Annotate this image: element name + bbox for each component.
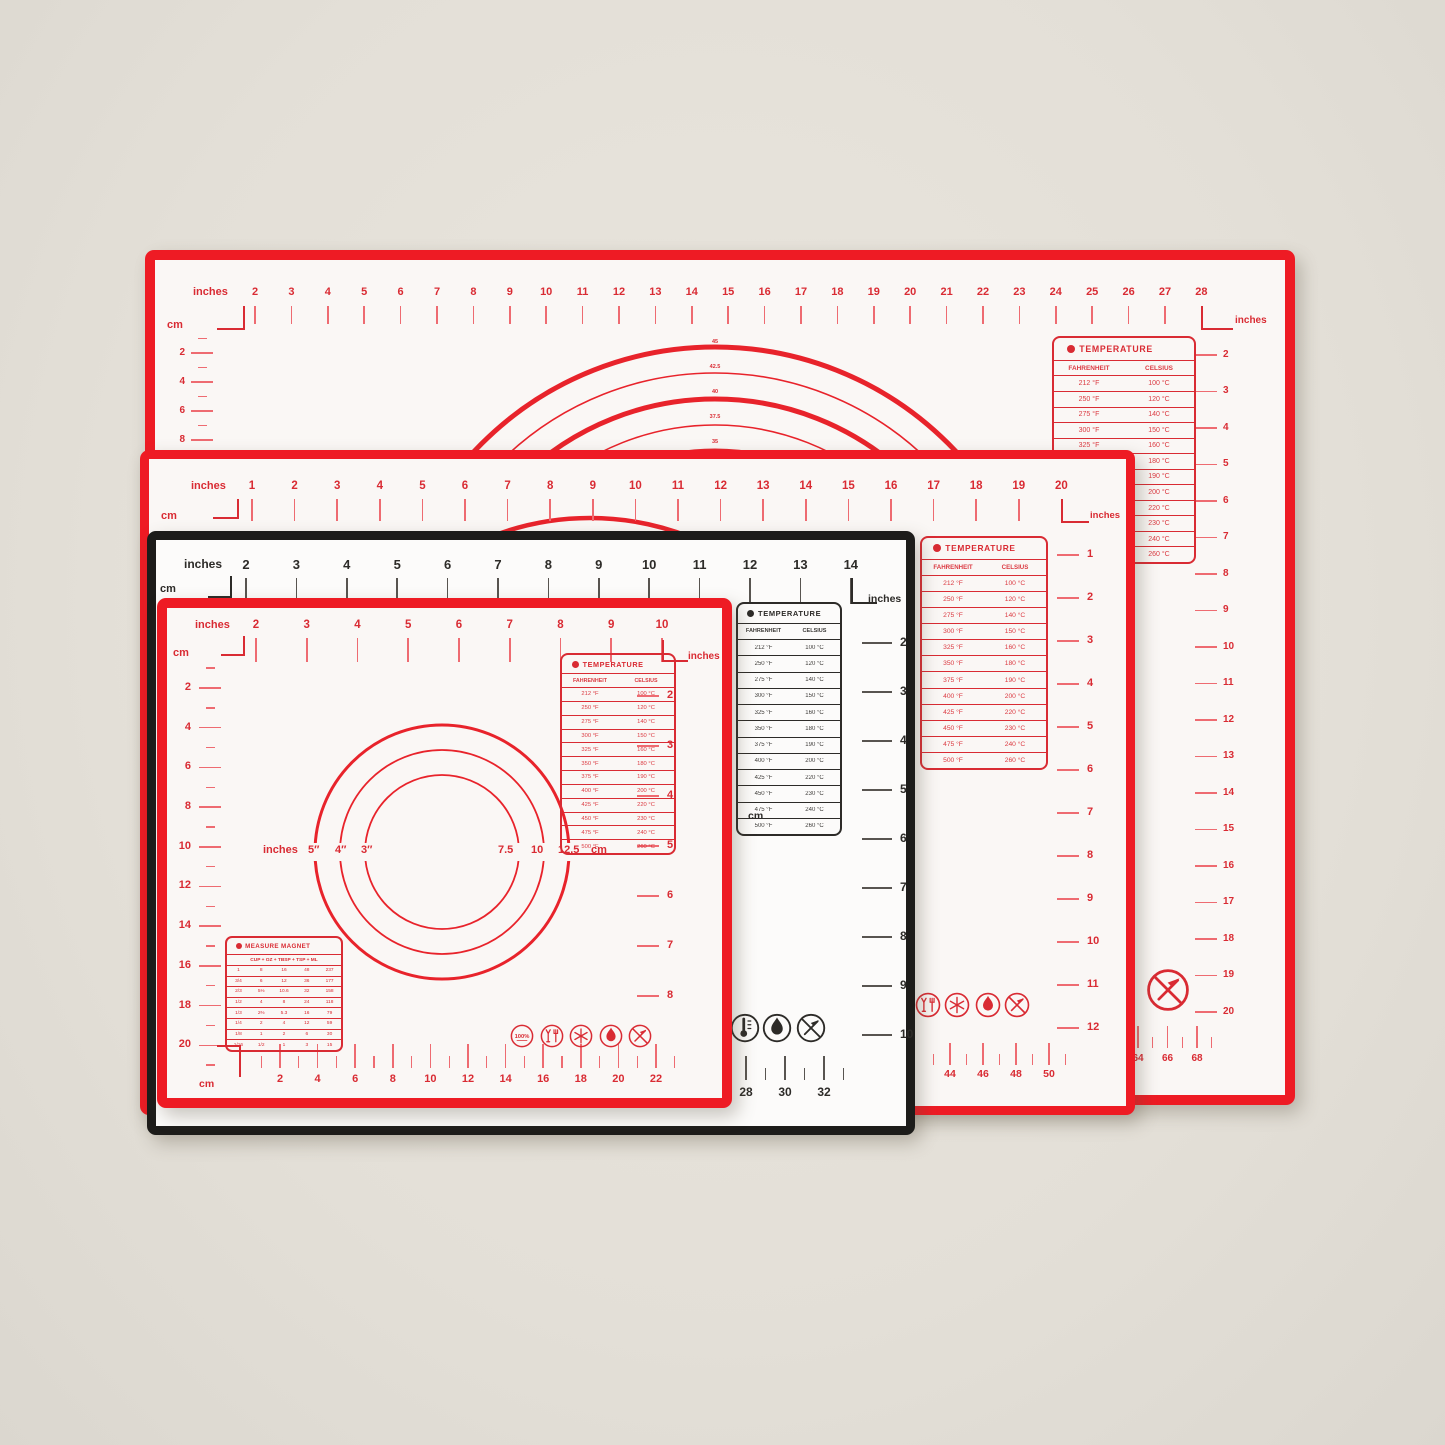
- ruler-tick: [805, 499, 807, 521]
- ruler-dash: [1195, 537, 1217, 539]
- ruler-number: 2: [1087, 592, 1117, 603]
- ruler-minor-dash: [206, 826, 216, 827]
- ruler-number: 7: [1087, 807, 1117, 818]
- ruler-number: 16: [875, 481, 907, 493]
- ruler-tick: [1167, 1026, 1169, 1048]
- measure-magnet-heading: MEASURE MAGNET: [245, 943, 310, 950]
- ruler-tick: [363, 306, 365, 324]
- temperature-column-header: FAHRENHEIT: [922, 560, 984, 575]
- ruler-minor-dash: [206, 945, 216, 946]
- temperature-table: TEMPERATUREFAHRENHEITCELSIUS212 °F100 °C…: [920, 536, 1048, 770]
- ruler-number: 22: [640, 1074, 672, 1085]
- ruler-corner: [217, 306, 245, 330]
- fahrenheit-value: 425 °F: [922, 705, 984, 720]
- temperature-table-body: FAHRENHEITCELSIUS212 °F100 °C250 °F120 °…: [562, 673, 674, 853]
- temperature-table: TEMPERATUREFAHRENHEITCELSIUS212 °F100 °C…: [560, 653, 676, 855]
- food-safe-icon: [540, 1024, 564, 1048]
- ruler-number: 4: [342, 620, 374, 632]
- celsius-value: 100 °C: [1124, 376, 1194, 391]
- measure-value: 6: [295, 1030, 318, 1040]
- temperature-row: 325 °F160 °C: [922, 639, 1046, 655]
- food-safe-icon: [915, 992, 941, 1018]
- ring-size-label: 45: [700, 340, 730, 346]
- temperature-row: 425 °F220 °C: [738, 769, 840, 785]
- bullet-dot-icon: [572, 661, 579, 668]
- temperature-row: 300 °F150 °C: [922, 623, 1046, 639]
- ruler-tick: [1048, 1043, 1050, 1065]
- ruler-number: 20: [894, 287, 926, 298]
- ruler-tick: [509, 638, 511, 662]
- celsius-value: 220 °C: [984, 705, 1046, 720]
- fahrenheit-value: 325 °F: [922, 640, 984, 655]
- measure-value: 24: [295, 998, 318, 1008]
- ruler-dash: [1195, 938, 1217, 940]
- ruler-dash: [1195, 719, 1217, 721]
- ruler-minor-tick: [599, 1056, 600, 1068]
- measure-value: 5.3: [273, 1008, 296, 1018]
- ruler-dash: [191, 381, 213, 383]
- temperature-header-row: FAHRENHEITCELSIUS: [1054, 360, 1194, 376]
- ruler-number: 4: [900, 734, 930, 746]
- celsius-value: 100 °C: [984, 576, 1046, 591]
- temperature-row: 375 °F190 °C: [738, 737, 840, 753]
- ruler-number: 15: [1223, 824, 1253, 834]
- ruler-tick: [306, 638, 308, 662]
- ruler-dash: [1195, 865, 1217, 867]
- measure-value: 158: [318, 987, 341, 997]
- temperature-column-header: CELSIUS: [789, 624, 840, 639]
- celsius-value: 190 °C: [984, 672, 1046, 687]
- ruler-number: 16: [749, 287, 781, 298]
- ruler-number: 3: [1087, 635, 1117, 646]
- ruler-number: 22: [967, 287, 999, 298]
- celsius-value: 120 °C: [789, 656, 840, 671]
- ruler-corner: [208, 576, 232, 598]
- temperature-table-title: TEMPERATURE: [562, 655, 674, 673]
- ruler-tick: [354, 1044, 356, 1068]
- celsius-value: 220 °C: [618, 799, 674, 812]
- ruler-number: 6: [385, 287, 417, 298]
- fahrenheit-value: 300 °F: [562, 730, 618, 743]
- temperature-column-header: FAHRENHEIT: [738, 624, 789, 639]
- celsius-value: 160 °C: [984, 640, 1046, 655]
- measure-value: 32: [295, 987, 318, 997]
- ruler-minor-dash: [206, 1064, 216, 1065]
- circle-diameter-label: 4″: [335, 845, 346, 856]
- fahrenheit-value: 275 °F: [562, 716, 618, 729]
- inches-unit-label: inches: [1235, 316, 1267, 326]
- temperature-row: 350 °F180 °C: [562, 756, 674, 770]
- fahrenheit-value: 212 °F: [738, 640, 789, 655]
- ruler-number: 7: [667, 940, 697, 951]
- cm-unit-label: cm: [167, 320, 183, 331]
- ruler-dash: [199, 806, 221, 808]
- ruler-number: 5: [900, 783, 930, 795]
- celsius-value: 240 °C: [984, 737, 1046, 752]
- celsius-value: 230 °C: [618, 813, 674, 826]
- ruler-tick: [291, 306, 293, 324]
- temperature-row: 250 °F120 °C: [1054, 391, 1194, 407]
- ruler-dash: [1195, 683, 1217, 685]
- temperature-row: 350 °F180 °C: [922, 655, 1046, 671]
- ruler-tick: [800, 578, 802, 604]
- fahrenheit-value: 350 °F: [922, 656, 984, 671]
- measure-magnet-row: 3/461236177: [227, 976, 341, 987]
- measure-value: 5⅓: [250, 987, 273, 997]
- measure-value: 10.6: [273, 987, 296, 997]
- ruler-tick: [458, 638, 460, 662]
- ruler-tick: [400, 306, 402, 324]
- fahrenheit-value: 400 °F: [738, 754, 789, 769]
- ruler-minor-tick: [637, 1056, 638, 1068]
- temperature-column-header: FAHRENHEIT: [562, 674, 618, 687]
- ruler-number: 24: [1040, 287, 1072, 298]
- ruler-tick: [655, 306, 657, 324]
- ruler-tick: [392, 1044, 394, 1068]
- ruler-dash: [199, 965, 221, 967]
- measure-value: 2/3: [227, 987, 250, 997]
- inches-unit-label: inches: [868, 594, 901, 605]
- ruler-tick: [379, 499, 381, 521]
- ruler-number: 3: [321, 481, 353, 493]
- ruler-number: 10: [900, 1028, 930, 1040]
- ruler-tick: [1018, 499, 1020, 521]
- ruler-number: 2: [900, 636, 930, 648]
- ruler-minor-dash: [198, 425, 208, 426]
- ruler-number: 6: [1087, 764, 1117, 775]
- ruler-number: 19: [1223, 970, 1253, 980]
- celsius-value: 150 °C: [984, 624, 1046, 639]
- ruler-tick: [1137, 1026, 1139, 1048]
- ruler-tick: [949, 1043, 951, 1065]
- ruler-number: 12: [603, 287, 635, 298]
- ruler-number: 6: [443, 620, 475, 632]
- ruler-minor-tick: [449, 1056, 450, 1068]
- ruler-minor-tick: [843, 1068, 844, 1080]
- measure-value: 1: [273, 1040, 296, 1050]
- badge-100-icon: 100%: [510, 1024, 534, 1048]
- measure-value: 12: [273, 977, 296, 987]
- temperature-column-header: FAHRENHEIT: [1054, 361, 1124, 376]
- celsius-value: 160 °C: [789, 705, 840, 720]
- bullet-dot-icon: [236, 943, 242, 949]
- temperature-column-header: CELSIUS: [1124, 361, 1194, 376]
- ruler-number: 30: [769, 1086, 801, 1098]
- ruler-number: 8: [900, 930, 930, 942]
- ruler-minor-tick: [1152, 1037, 1153, 1048]
- ruler-number: 3: [291, 620, 323, 632]
- fahrenheit-value: 350 °F: [738, 721, 789, 736]
- fahrenheit-value: 250 °F: [922, 592, 984, 607]
- ruler-tick: [327, 306, 329, 324]
- fahrenheit-value: 425 °F: [562, 799, 618, 812]
- cm-unit-label: cm: [748, 811, 763, 822]
- measure-value: 1/4: [227, 1019, 250, 1029]
- fahrenheit-value: 212 °F: [1054, 376, 1124, 391]
- ruler-dash: [1057, 726, 1079, 728]
- ruler-tick: [873, 306, 875, 324]
- ruler-number: 28: [1185, 287, 1217, 298]
- ruler-number: 3: [280, 558, 312, 571]
- ruler-number: 11: [662, 481, 694, 493]
- ruler-number: 7: [900, 881, 930, 893]
- ruler-tick: [422, 499, 424, 521]
- ruler-corner: [213, 499, 239, 519]
- ruler-tick: [1019, 306, 1021, 324]
- ruler-tick: [933, 499, 935, 521]
- celsius-value: 140 °C: [618, 716, 674, 729]
- ruler-number: 11: [1087, 979, 1117, 990]
- ruler-number: 9: [494, 287, 526, 298]
- celsius-value: 200 °C: [984, 689, 1046, 704]
- ruler-dash: [199, 886, 221, 888]
- ruler-number: 9: [595, 620, 627, 632]
- ruler-dash: [1057, 1027, 1079, 1029]
- measure-value: 79: [318, 1008, 341, 1018]
- measure-value: 2: [273, 1030, 296, 1040]
- no-knife-icon: [796, 1013, 826, 1043]
- fahrenheit-value: 212 °F: [922, 576, 984, 591]
- ruler-tick: [764, 306, 766, 324]
- ruler-corner: [1201, 306, 1233, 330]
- measure-value: 12: [295, 1019, 318, 1029]
- measure-value: 1: [250, 1030, 273, 1040]
- ruler-tick: [507, 499, 509, 521]
- ruler-dash: [1195, 829, 1217, 831]
- temperature-table: TEMPERATUREFAHRENHEITCELSIUS212 °F100 °C…: [736, 602, 842, 836]
- ruler-number: 2: [239, 287, 271, 298]
- ring-size-label: 42.5: [700, 365, 730, 371]
- temperature-heading: TEMPERATURE: [583, 660, 644, 669]
- ruler-number: 13: [639, 287, 671, 298]
- measure-value: 16: [295, 1008, 318, 1018]
- ring-size-label: 37.5: [700, 415, 730, 421]
- temperature-column-header: CELSIUS: [618, 674, 674, 687]
- ruler-minor-dash: [206, 787, 216, 788]
- ruler-number: 10: [1087, 936, 1117, 947]
- ruler-number: 19: [858, 287, 890, 298]
- ruler-tick: [762, 499, 764, 521]
- ruler-number: 10: [530, 287, 562, 298]
- ruler-number: 5: [381, 558, 413, 571]
- ruler-number: 12: [452, 1074, 484, 1085]
- ruler-number: 14: [1223, 788, 1253, 798]
- ruler-number: 44: [934, 1069, 966, 1080]
- bullet-dot-icon: [747, 610, 754, 617]
- measure-value: 237: [318, 966, 341, 976]
- fahrenheit-value: 500 °F: [738, 819, 789, 834]
- ruler-minor-dash: [206, 906, 216, 907]
- ruler-tick: [505, 1044, 507, 1068]
- ruler-dash: [1057, 769, 1079, 771]
- fahrenheit-value: 325 °F: [738, 705, 789, 720]
- measure-magnet-table: MEASURE MAGNETCUP + OZ + TBSP + TSP + ML…: [225, 936, 343, 1052]
- ruler-minor-dash: [206, 747, 216, 748]
- celsius-value: 190 °C: [618, 771, 674, 784]
- ruler-dash: [199, 1005, 221, 1007]
- ruler-tick: [254, 306, 256, 324]
- temperature-row: 275 °F140 °C: [1054, 407, 1194, 423]
- ruler-tick: [823, 1056, 825, 1080]
- ring-size-label: 35: [700, 440, 730, 446]
- ruler-minor-dash: [206, 667, 216, 668]
- ruler-number: 6: [900, 832, 930, 844]
- ruler-number: 7: [492, 481, 524, 493]
- ruler-number: 8: [155, 435, 185, 445]
- ruler-tick: [1055, 306, 1057, 324]
- ruler-number: 9: [583, 558, 615, 571]
- ruler-dash: [1057, 554, 1079, 556]
- ruler-number: 18: [960, 481, 992, 493]
- ruler-number: 23: [1003, 287, 1035, 298]
- ruler-number: 4: [155, 377, 185, 387]
- measure-value: 118: [318, 998, 341, 1008]
- ruler-number: 8: [377, 1074, 409, 1085]
- celsius-value: 140 °C: [984, 608, 1046, 623]
- fahrenheit-value: 212 °F: [562, 688, 618, 701]
- ruler-minor-tick: [298, 1056, 299, 1068]
- ruler-number: 4: [1223, 423, 1253, 433]
- ruler-tick: [848, 499, 850, 521]
- ruler-number: 15: [832, 481, 864, 493]
- product-photo-baking-mats: 4542.54037.535inchescm234567891011121314…: [0, 0, 1445, 1445]
- ruler-number: 2: [230, 558, 262, 571]
- ruler-tick: [357, 638, 359, 662]
- ruler-tick: [464, 499, 466, 521]
- measure-value: 48: [295, 966, 318, 976]
- temperature-row: 212 °F100 °C: [1054, 375, 1194, 391]
- measure-magnet-row: 181648237: [227, 965, 341, 976]
- temperature-row: 212 °F100 °C: [738, 639, 840, 655]
- ruler-tick: [1015, 1043, 1017, 1065]
- ruler-number: 14: [490, 1074, 522, 1085]
- cm-unit-label: cm: [173, 648, 189, 659]
- no-knife-icon: [628, 1024, 652, 1048]
- ruler-tick: [749, 578, 751, 604]
- ruler-number: 3: [275, 287, 307, 298]
- measure-value: 2: [250, 1019, 273, 1029]
- ruler-minor-tick: [1182, 1037, 1183, 1048]
- ruler-number: 18: [821, 287, 853, 298]
- circle-diameter-label: 12.5: [558, 845, 579, 856]
- circle-diameter-label: 5″: [308, 845, 319, 856]
- ruler-tick: [982, 306, 984, 324]
- ruler-number: 12: [1087, 1022, 1117, 1033]
- fahrenheit-value: 450 °F: [922, 721, 984, 736]
- measure-magnet-title: MEASURE MAGNET: [227, 938, 341, 954]
- ruler-number: 66: [1152, 1054, 1184, 1064]
- ruler-dash: [637, 995, 659, 997]
- ruler-tick: [635, 499, 637, 521]
- fahrenheit-value: 500 °F: [922, 753, 984, 768]
- ruler-number: 14: [790, 481, 822, 493]
- ruler-dash: [191, 439, 213, 441]
- ruler-minor-dash: [206, 866, 216, 867]
- ruler-number: 1: [236, 481, 268, 493]
- celsius-value: 160 °C: [618, 743, 674, 756]
- celsius-value: 120 °C: [1124, 392, 1194, 407]
- ruler-tick: [509, 306, 511, 324]
- ruler-dash: [1195, 427, 1217, 429]
- ruler-number: 18: [1223, 934, 1253, 944]
- ruler-number: 4: [167, 722, 191, 733]
- ruler-number: 5: [406, 481, 438, 493]
- ruler-minor-tick: [1211, 1037, 1212, 1048]
- measure-value: 1/8: [227, 1030, 250, 1040]
- temperature-row: 250 °F120 °C: [738, 655, 840, 671]
- ruler-minor-tick: [999, 1054, 1000, 1065]
- circle-diameter-label: 10: [531, 845, 543, 856]
- celsius-value: 140 °C: [789, 673, 840, 688]
- ruler-number: 17: [918, 481, 950, 493]
- ruler-minor-tick: [373, 1056, 374, 1068]
- temperature-row: 325 °F160 °C: [738, 704, 840, 720]
- ruler-dash: [862, 936, 892, 938]
- fahrenheit-value: 275 °F: [1054, 408, 1124, 423]
- measure-value: 59: [318, 1019, 341, 1029]
- ruler-number: 7: [421, 287, 453, 298]
- ruler-number: 12: [167, 880, 191, 891]
- ruler-tick: [1164, 306, 1166, 324]
- ruler-minor-dash: [206, 707, 216, 708]
- fahrenheit-value: 375 °F: [562, 771, 618, 784]
- ruler-tick: [251, 499, 253, 521]
- ruler-number: 11: [684, 558, 716, 571]
- measure-value: 8: [250, 966, 273, 976]
- ruler-dash: [862, 740, 892, 742]
- measure-value: 3/4: [227, 977, 250, 987]
- ruler-number: 6: [432, 558, 464, 571]
- measure-value: 8: [273, 998, 296, 1008]
- ruler-number: 18: [565, 1074, 597, 1085]
- ruler-number: 4: [302, 1074, 334, 1085]
- ruler-number: 16: [1223, 861, 1253, 871]
- ruler-number: 4: [331, 558, 363, 571]
- ruler-number: 8: [667, 990, 697, 1001]
- fahrenheit-value: 275 °F: [922, 608, 984, 623]
- ruler-dash: [1057, 941, 1079, 943]
- temperature-header-row: FAHRENHEITCELSIUS: [562, 673, 674, 687]
- ruler-number: 9: [577, 481, 609, 493]
- ruler-number: 5: [392, 620, 424, 632]
- ruler-number: 20: [167, 1039, 191, 1050]
- ruler-tick: [430, 1044, 432, 1068]
- ruler-tick: [890, 499, 892, 521]
- temperature-row: 212 °F100 °C: [562, 687, 674, 701]
- ruler-number: 11: [567, 287, 599, 298]
- ruler-dash: [637, 895, 659, 897]
- temperature-row: 400 °F200 °C: [562, 784, 674, 798]
- fahrenheit-value: 300 °F: [922, 624, 984, 639]
- ruler-number: 13: [1223, 751, 1253, 761]
- celsius-value: 200 °C: [789, 754, 840, 769]
- ruler-number: 50: [1033, 1069, 1065, 1080]
- no-knife-icon: [1004, 992, 1030, 1018]
- ruler-tick: [336, 499, 338, 521]
- measure-value: 1/2: [227, 998, 250, 1008]
- ruler-number: 2: [167, 682, 191, 693]
- celsius-value: 120 °C: [984, 592, 1046, 607]
- ruler-number: 8: [1087, 850, 1117, 861]
- celsius-value: 180 °C: [789, 721, 840, 736]
- fahrenheit-value: 250 °F: [738, 656, 789, 671]
- ruler-dash: [1195, 391, 1217, 393]
- ruler-tick: [294, 499, 296, 521]
- ruler-dash: [1195, 354, 1217, 356]
- ruler-number: 11: [1223, 678, 1253, 688]
- ruler-minor-tick: [336, 1056, 337, 1068]
- ruler-number: 48: [1000, 1069, 1032, 1080]
